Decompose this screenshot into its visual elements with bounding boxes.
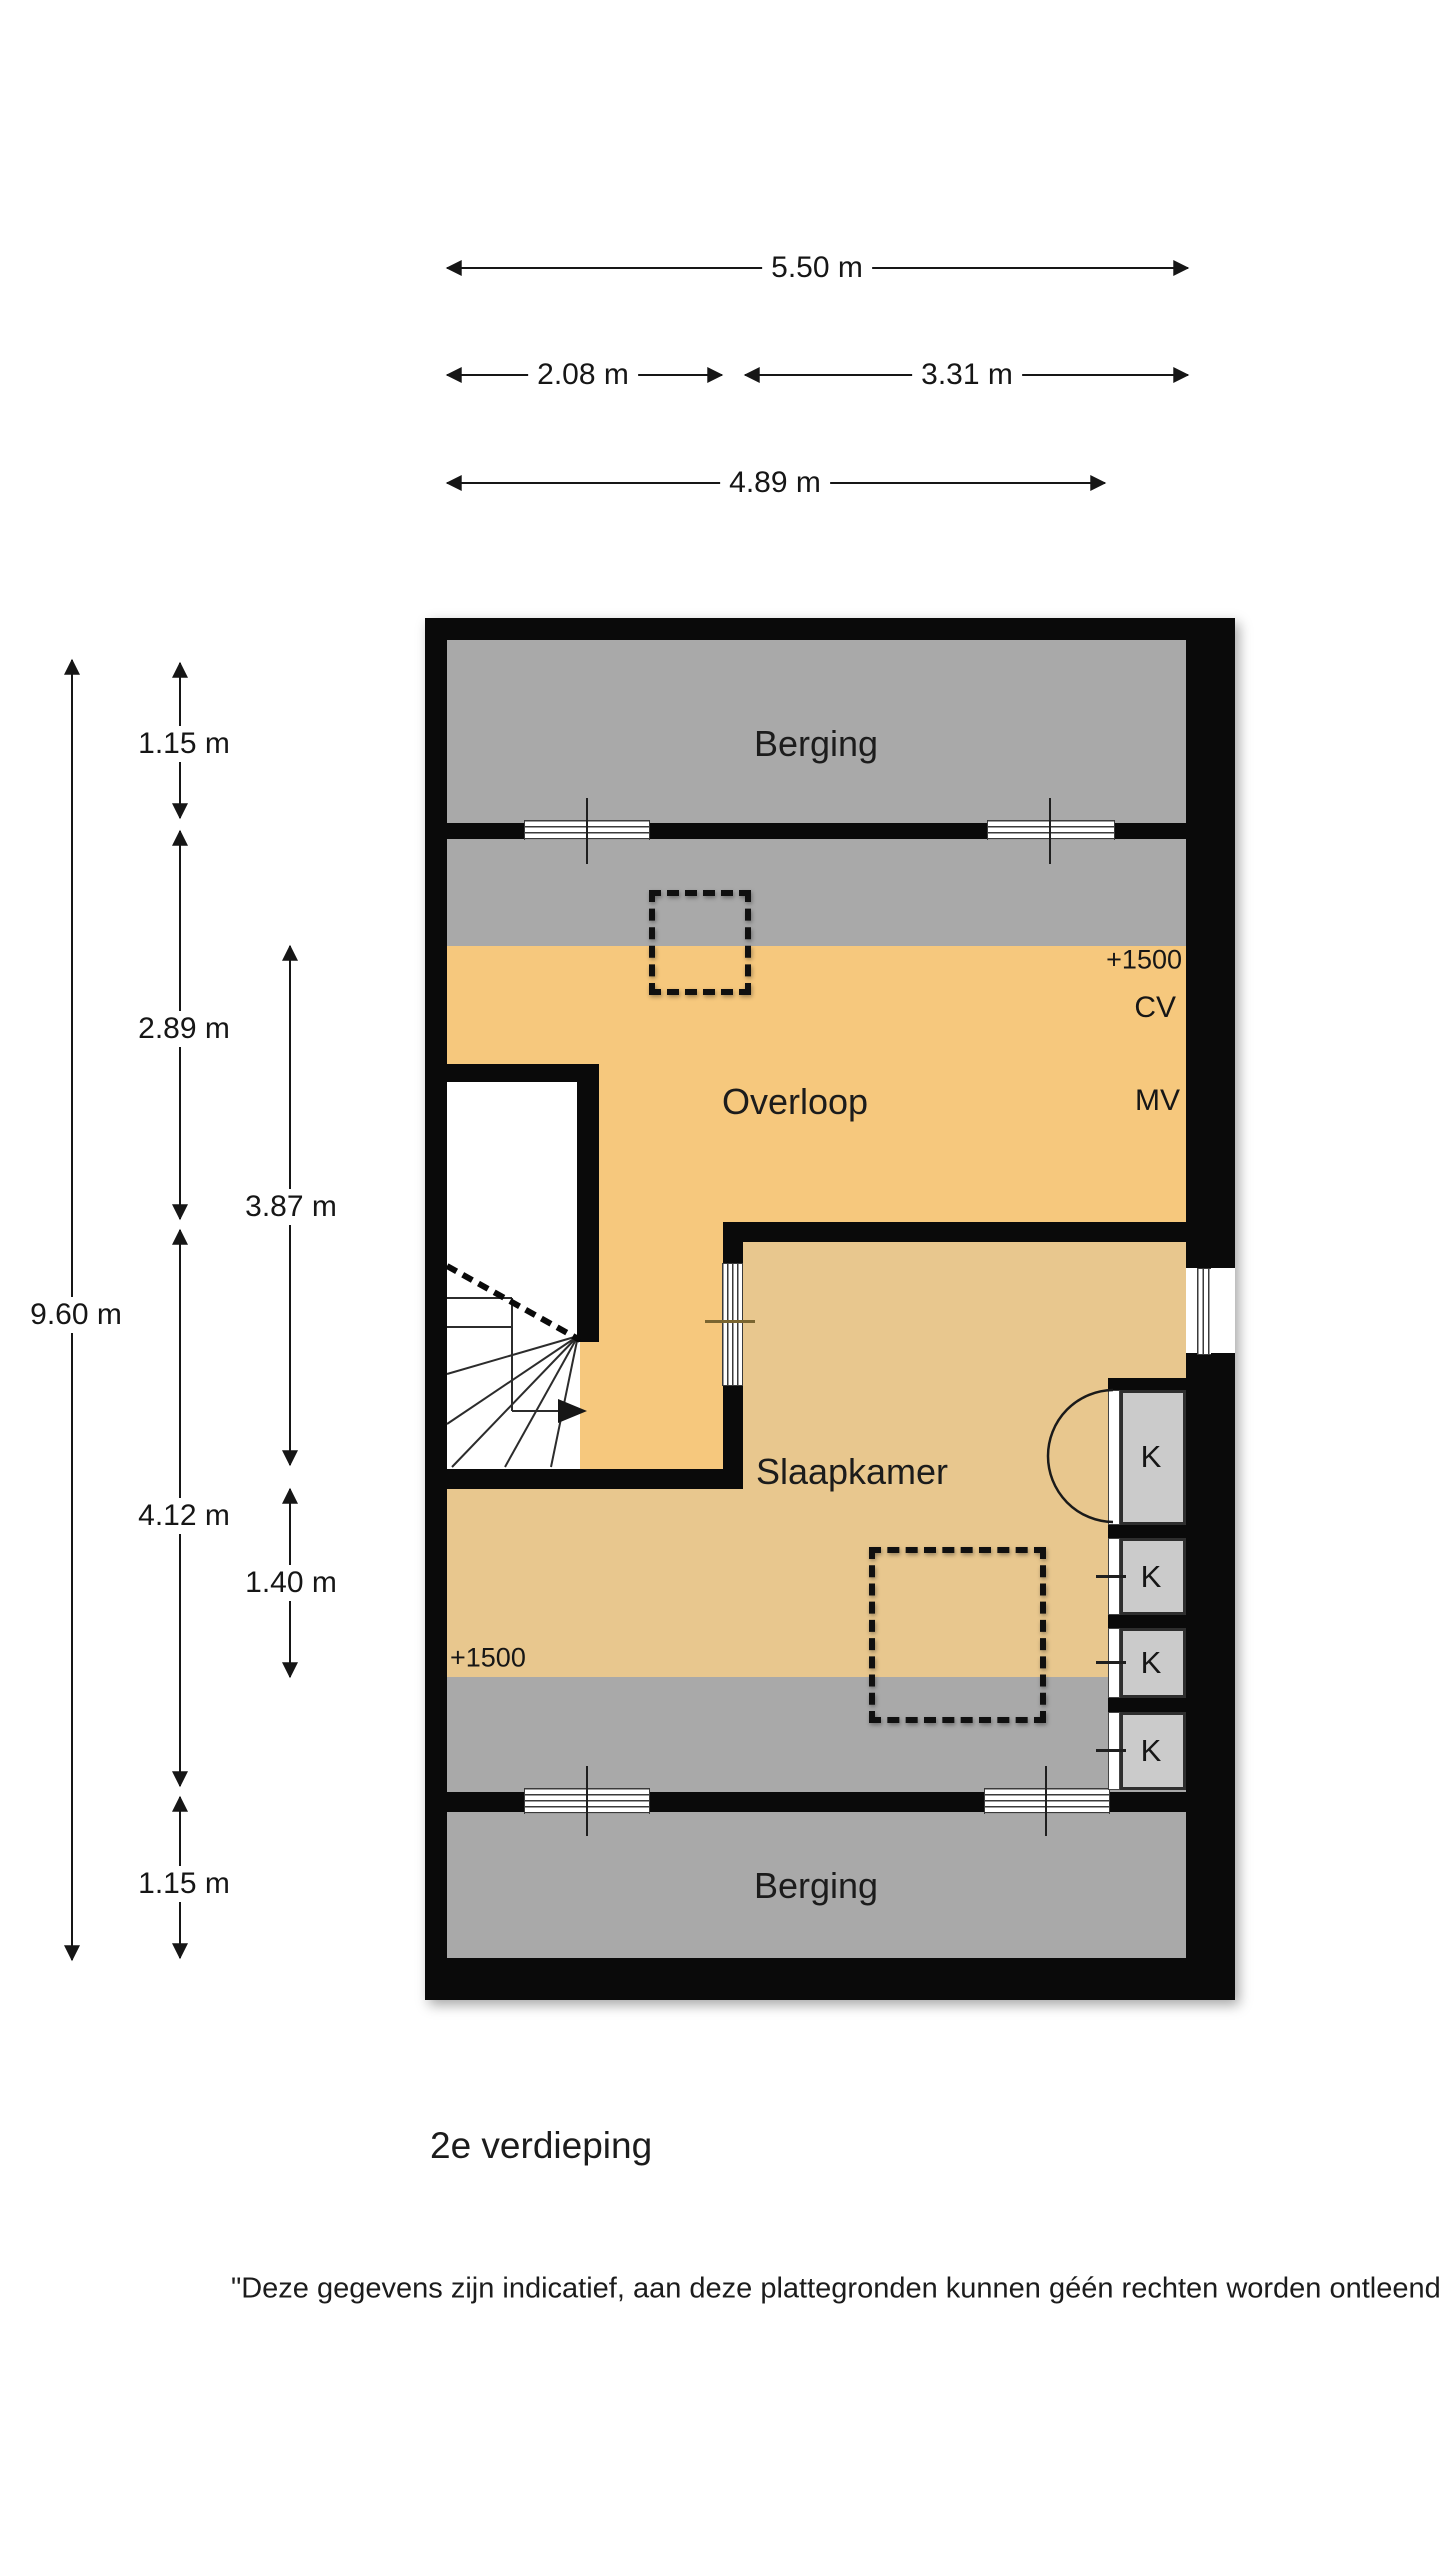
closet-k1-door bbox=[1108, 1390, 1120, 1525]
wall-closet-sep2 bbox=[1108, 1615, 1186, 1628]
dim-height-slaapkamer: 4.12 m bbox=[129, 1498, 239, 1534]
label-height-marker-top: +1500 bbox=[1106, 945, 1182, 976]
floor-plan-page: Berging Overloop Slaapkamer Berging +150… bbox=[0, 0, 1440, 2560]
disclaimer-text: "Deze gegevens zijn indicatief, aan deze… bbox=[231, 2273, 1440, 2306]
dim-height-overloop: 2.89 m bbox=[129, 1011, 239, 1047]
window-tick-top-right bbox=[1049, 798, 1051, 864]
wall-stair-bottom bbox=[425, 1469, 743, 1489]
dim-height-berging-top: 1.15 m bbox=[129, 726, 239, 762]
dim-height-slaapkamer-inner: 1.40 m bbox=[236, 1565, 346, 1601]
label-cv-unit: CV bbox=[1134, 991, 1176, 1025]
wall-slaapkamer-west-stub bbox=[723, 1222, 743, 1263]
wall-stair-right bbox=[577, 1082, 599, 1342]
closet-k4-tick bbox=[1096, 1749, 1126, 1752]
wall-closet-sep1 bbox=[1108, 1525, 1186, 1538]
wall-overloop-slaapkamer bbox=[723, 1222, 1186, 1242]
skylight-bottom bbox=[869, 1547, 1046, 1723]
dim-width-left: 2.08 m bbox=[528, 357, 638, 393]
door-slaapkamer bbox=[722, 1263, 743, 1386]
dim-height-overloop-inner: 3.87 m bbox=[236, 1189, 346, 1225]
label-slaapkamer: Slaapkamer bbox=[756, 1451, 948, 1493]
label-closet-k4: K bbox=[1141, 1733, 1162, 1769]
dim-height-berging-bottom: 1.15 m bbox=[129, 1866, 239, 1902]
door-slaapkamer-line bbox=[705, 1320, 755, 1323]
dim-width-right: 3.31 m bbox=[912, 357, 1022, 393]
window-bottom-wall-right bbox=[984, 1788, 1110, 1814]
label-overloop: Overloop bbox=[722, 1081, 868, 1123]
overloop-corridor-lower bbox=[577, 1342, 743, 1469]
dim-width-room: 4.89 m bbox=[720, 465, 830, 501]
low-ceiling-strip-bottom bbox=[447, 1677, 1186, 1792]
label-berging-top: Berging bbox=[754, 723, 878, 765]
stairwell bbox=[447, 1082, 580, 1469]
window-right-wall-glass bbox=[1197, 1268, 1211, 1355]
window-top-wall-right bbox=[987, 820, 1115, 840]
window-tick-top-left bbox=[586, 798, 588, 864]
low-ceiling-strip-top bbox=[447, 838, 1186, 946]
closet-k3-tick bbox=[1096, 1661, 1126, 1664]
label-closet-k3: K bbox=[1141, 1645, 1162, 1681]
wall-closet-sep3 bbox=[1108, 1698, 1186, 1712]
label-berging-bottom: Berging bbox=[754, 1865, 878, 1907]
wall-closet-cap bbox=[1108, 1378, 1186, 1390]
wall-stair-top bbox=[447, 1064, 599, 1082]
window-tick-bottom-right bbox=[1045, 1766, 1047, 1836]
wall-slaapkamer-west bbox=[723, 1384, 743, 1489]
label-closet-k1: K bbox=[1141, 1439, 1162, 1475]
label-mv-unit: MV bbox=[1135, 1084, 1180, 1118]
skylight-top bbox=[649, 890, 751, 995]
label-height-marker-bottom: +1500 bbox=[450, 1643, 526, 1674]
closet-k2-tick bbox=[1096, 1575, 1126, 1578]
plan-outer-walls bbox=[425, 618, 1235, 2000]
dim-height-total: 9.60 m bbox=[21, 1297, 131, 1333]
dim-width-total: 5.50 m bbox=[762, 250, 872, 286]
label-closet-k2: K bbox=[1141, 1559, 1162, 1595]
window-tick-bottom-left bbox=[586, 1766, 588, 1836]
floor-title: 2e verdieping bbox=[430, 2125, 652, 2167]
